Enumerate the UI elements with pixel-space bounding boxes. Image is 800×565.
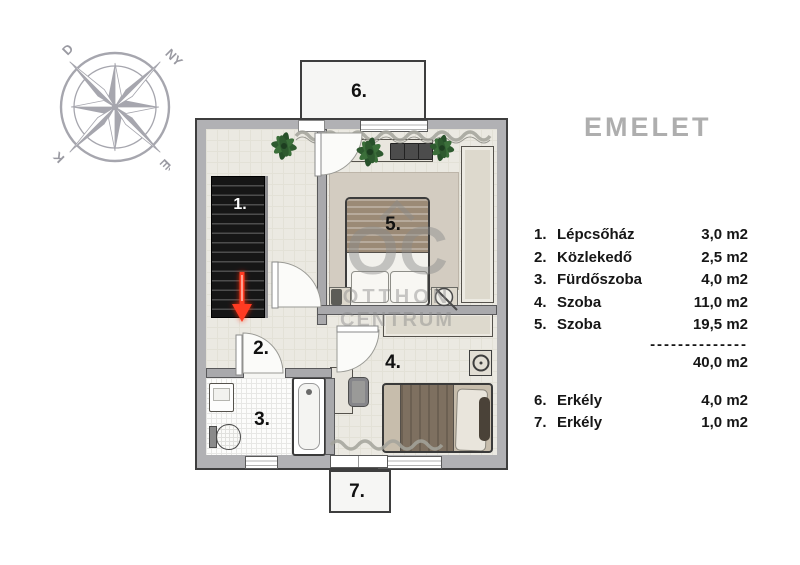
room-number: 5. [534,317,557,333]
watermark-line1: OTTHON [338,286,456,309]
room-name: Szoba [557,295,694,311]
legend-divider: -------------- [534,340,748,350]
watermark: OC OTTHON CENTRUM [338,219,456,332]
door-room5 [276,262,321,307]
room-label-1: 1. [233,196,246,214]
room-area: 1,0 m2 [701,415,748,431]
room-area: 2,5 m2 [701,250,748,266]
legend-row: 4. Szoba 11,0 m2 [534,295,748,311]
door-leaf [272,262,278,308]
door-leaf [315,133,321,176]
legend-row: 3. Fürdőszoba 4,0 m2 [534,272,748,288]
legend-row: 7. Erkély 1,0 m2 [534,415,748,431]
room-number: 7. [534,415,557,431]
room-area: 11,0 m2 [694,295,748,311]
room-number: 3. [534,272,557,288]
room-name: Erkély [557,415,701,431]
room-name: Fürdőszoba [557,272,701,288]
watermark-line2: CENTRUM [338,309,456,332]
room-label-3: 3. [254,409,270,431]
room-name: Közlekedő [557,250,701,266]
room-area: 4,0 m2 [701,393,748,409]
legend-row: 6. Erkély 4,0 m2 [534,393,748,409]
room-label-6: 6. [351,81,367,103]
room-legend: 1. Lépcsőház 3,0 m2 2. Közlekedő 2,5 m2 … [534,227,748,438]
room-label-4: 4. [385,352,401,374]
room-area: 4,0 m2 [701,272,748,288]
door-room4 [337,330,379,372]
room-number: 1. [534,227,557,243]
room-name: Szoba [557,317,693,333]
curtain-bottom [331,441,442,449]
legend-total: 40,0 m2 [534,354,748,371]
room-number: 2. [534,250,557,266]
room-name: Erkély [557,393,701,409]
page-title: EMELET [584,112,712,143]
watermark-logo: OC [338,219,456,284]
stairs-direction-arrow [232,272,252,322]
floorplan-page: D NY K É EMELET [0,0,800,565]
door-balcony6 [320,133,362,175]
legend-row: 5. Szoba 19,5 m2 [534,317,748,333]
plant-icon [270,131,297,160]
legend-row: 2. Közlekedő 2,5 m2 [534,250,748,266]
room-name: Lépcsőház [557,227,701,243]
room-label-7: 7. [349,481,365,503]
legend-row: 1. Lépcsőház 3,0 m2 [534,227,748,243]
room-number: 4. [534,295,557,311]
legend-spacer [534,377,748,393]
door-leaf [236,335,242,375]
room-label-2: 2. [253,338,269,360]
room-number: 6. [534,393,557,409]
room-area: 19,5 m2 [693,317,748,333]
room-area: 3,0 m2 [701,227,748,243]
